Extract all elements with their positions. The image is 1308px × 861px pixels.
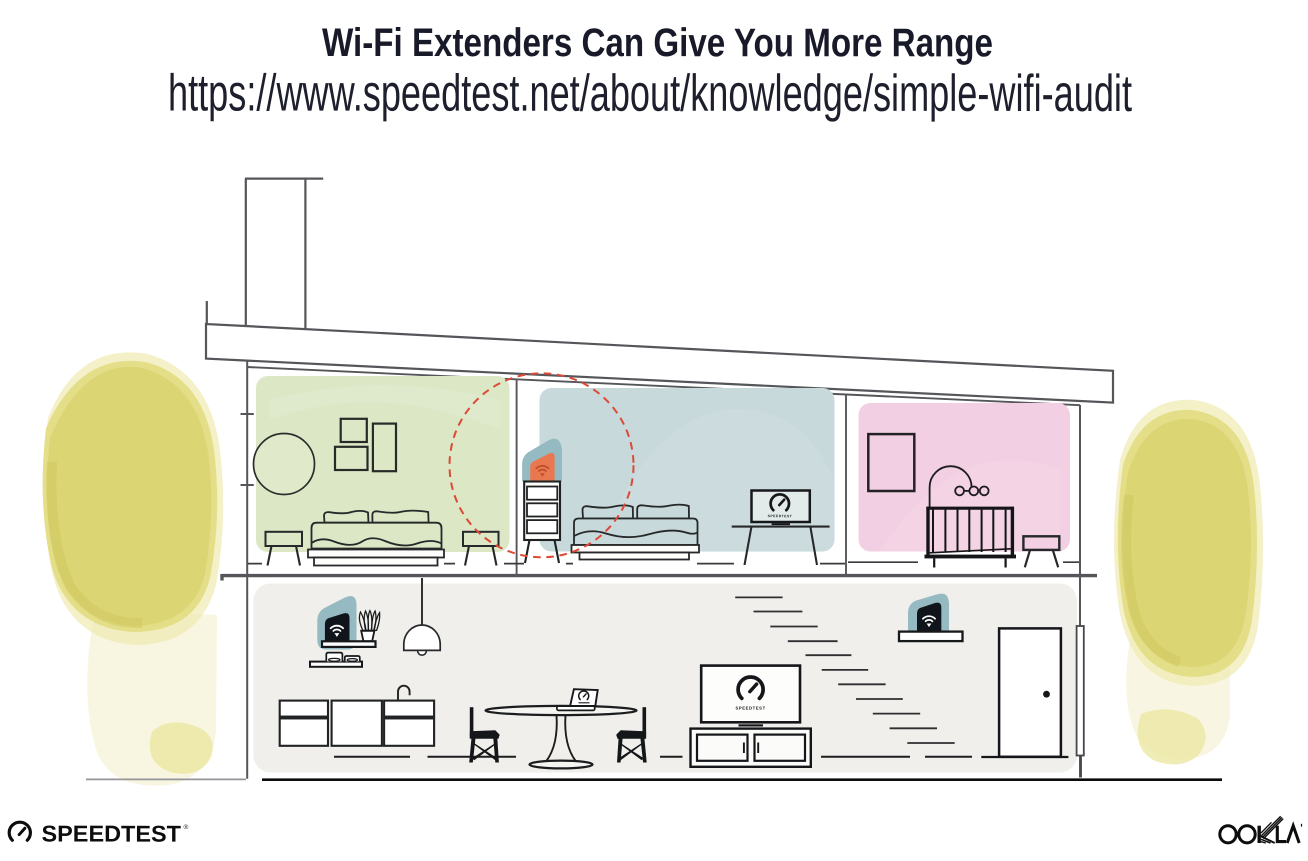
svg-text:SPEEDTEST: SPEEDTEST [768,514,793,518]
svg-text:SPEEDTEST: SPEEDTEST [41,821,181,847]
svg-text:®: ® [183,824,188,831]
svg-text:https://www.speedtest.net/abou: https://www.speedtest.net/about/knowledg… [168,65,1132,124]
svg-text:Wi-Fi Extenders Can Give You M: Wi-Fi Extenders Can Give You More Range [322,21,993,65]
svg-text:SPEEDTEST: SPEEDTEST [735,705,765,710]
